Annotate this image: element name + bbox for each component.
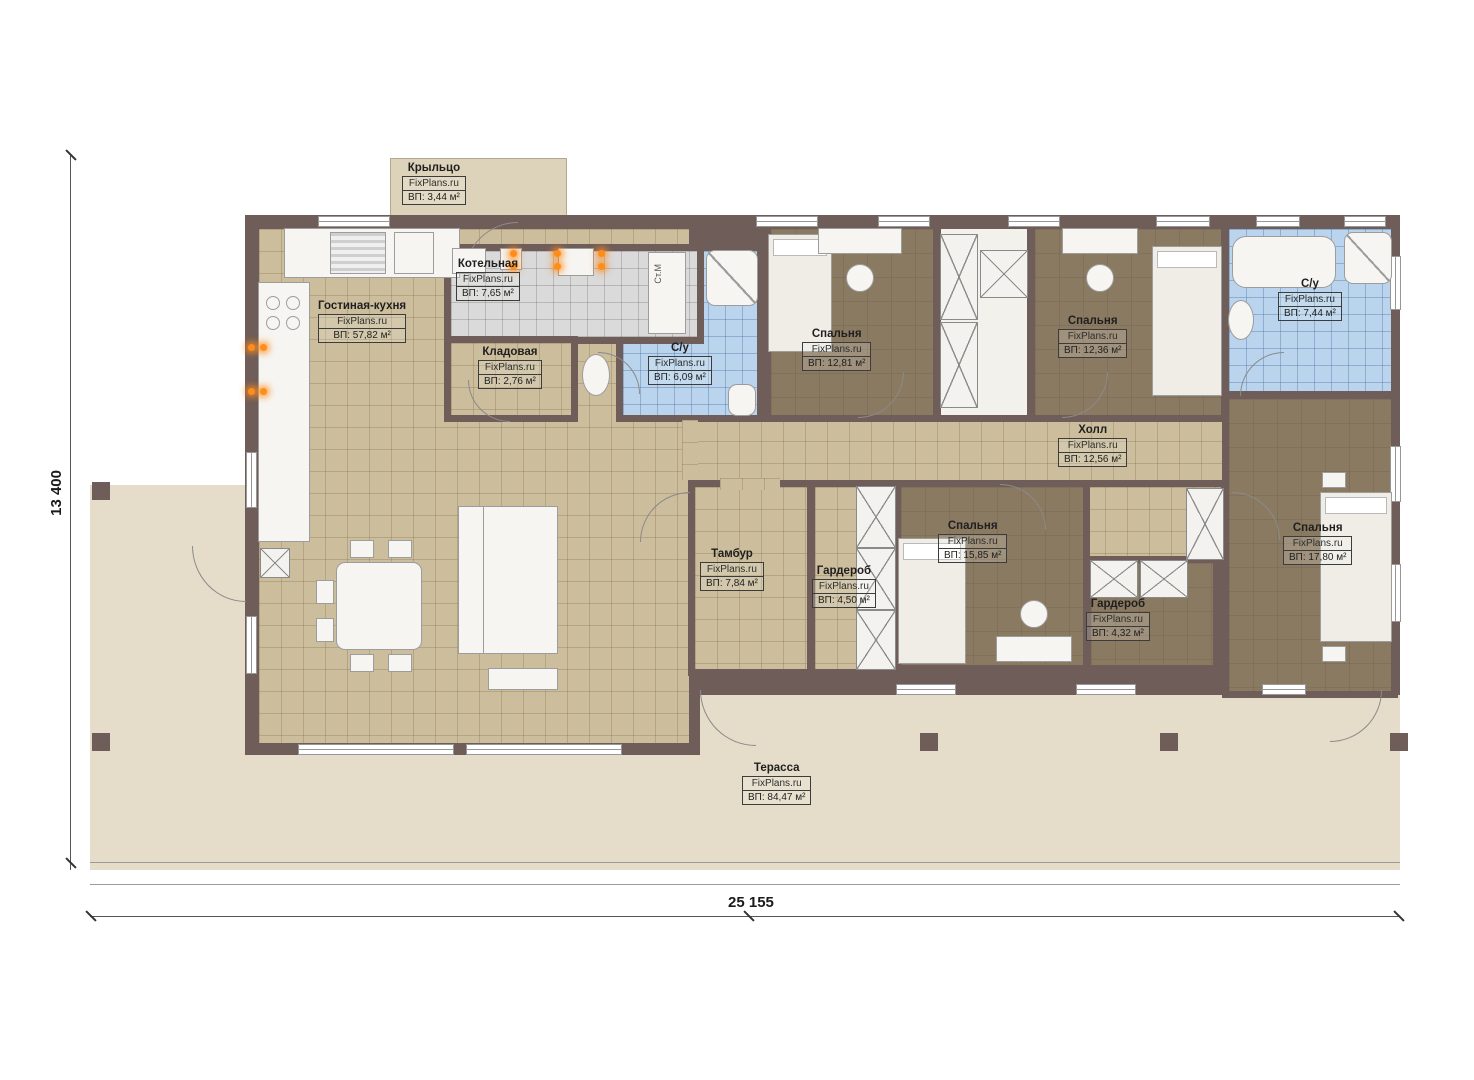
window (1008, 216, 1060, 227)
room-label-wardrobe-1: Гардероб FixPlans.ru ВП: 4,50 м² (812, 565, 876, 608)
room-area: ВП: 7,65 м² (457, 287, 519, 300)
room-area: ВП: 15,85 м² (939, 549, 1006, 562)
opening-hall-tambour (720, 478, 780, 490)
stove-burner (266, 316, 280, 330)
room-name: Гардероб (812, 565, 876, 577)
shaft-box (260, 548, 290, 578)
room-area: ВП: 12,36 м² (1059, 344, 1126, 357)
room-name: С/у (648, 342, 712, 354)
spot-light (598, 263, 605, 270)
lobby-sink (582, 354, 610, 396)
wardrobe-cabinet (856, 486, 896, 548)
nightstand (1322, 472, 1346, 488)
room-label-terrace: Терасса FixPlans.ru ВП: 84,47 м² (742, 762, 811, 805)
watermark: FixPlans.ru (457, 273, 519, 287)
room-area: ВП: 17,80 м² (1284, 551, 1351, 564)
dining-table (336, 562, 422, 650)
room-name: С/у (1278, 278, 1342, 290)
watermark: FixPlans.ru (1059, 439, 1126, 453)
room-name: Терасса (742, 762, 811, 774)
watermark: FixPlans.ru (1279, 293, 1341, 307)
wardrobe-cabinet (1090, 560, 1138, 598)
shower-tray (1344, 232, 1392, 284)
desk (1062, 228, 1138, 254)
window (878, 216, 930, 227)
chair (350, 540, 374, 558)
nightstand (1322, 646, 1346, 662)
room-area: ВП: 84,47 м² (743, 791, 810, 804)
room-area: ВП: 7,44 м² (1279, 307, 1341, 320)
room-label-living: Гостиная-кухня FixPlans.ru ВП: 57,82 м² (318, 300, 406, 343)
spot-light (260, 344, 267, 351)
watermark: FixPlans.ru (1059, 330, 1126, 344)
stove-burner (286, 316, 300, 330)
room-name: Спальня (1058, 315, 1127, 327)
desk-chair (846, 264, 874, 292)
watermark: FixPlans.ru (813, 580, 875, 594)
window (298, 744, 454, 755)
spot-light (554, 250, 561, 257)
room-label-wardrobe-2: Гардероб FixPlans.ru ВП: 4,32 м² (1086, 598, 1150, 641)
terrace-edge-line (90, 862, 1400, 863)
room-label-hall: Холл FixPlans.ru ВП: 12,56 м² (1058, 424, 1127, 467)
watermark: FixPlans.ru (319, 315, 405, 329)
window (756, 216, 818, 227)
room-name: Котельная (456, 258, 520, 270)
room-area: ВП: 3,44 м² (403, 191, 465, 204)
chair (316, 580, 334, 604)
room-label-bedroom-3: Спальня FixPlans.ru ВП: 15,85 м² (938, 520, 1007, 563)
window (246, 616, 257, 674)
room-area: ВП: 57,82 м² (319, 329, 405, 342)
terrace-post (92, 482, 110, 500)
spot-light (554, 263, 561, 270)
window (246, 452, 257, 508)
room-name: Спальня (802, 328, 871, 340)
room-name: Крыльцо (402, 162, 466, 174)
window (318, 216, 390, 227)
desk-chair (1020, 600, 1048, 628)
bathroom-sink (1228, 300, 1254, 340)
tv-stand (488, 668, 558, 690)
floor-plan: Ст.М Крыльцо FixPlans.ru ВП: (0, 0, 1474, 1080)
stove-burner (286, 296, 300, 310)
room-name: Спальня (938, 520, 1007, 532)
pillow (1325, 497, 1387, 514)
pillow (1157, 251, 1217, 268)
window (1256, 216, 1300, 227)
window (1156, 216, 1210, 227)
dimension-line-horizontal (90, 916, 1400, 917)
terrace-edge-line (90, 884, 1400, 885)
room-label-bedroom-1: Спальня FixPlans.ru ВП: 12,81 м² (802, 328, 871, 371)
wardrobe-cabinet (1140, 560, 1188, 598)
room-name: Спальня (1283, 522, 1352, 534)
room-label-boiler: Котельная FixPlans.ru ВП: 7,65 м² (456, 258, 520, 301)
sofa (458, 506, 558, 654)
room-name: Кладовая (478, 346, 542, 358)
window (1076, 684, 1136, 695)
spot-light (248, 388, 255, 395)
wardrobe-cabinet (940, 322, 978, 408)
room-hall (688, 412, 1232, 488)
wardrobe-cabinet (856, 610, 896, 670)
room-area: ВП: 4,32 м² (1087, 627, 1149, 640)
dimension-tick (65, 857, 76, 868)
spot-light (260, 388, 267, 395)
fridge (330, 232, 386, 274)
spot-light (510, 250, 517, 257)
chair (388, 540, 412, 558)
window (1262, 684, 1306, 695)
room-label-tambour: Тамбур FixPlans.ru ВП: 7,84 м² (700, 548, 764, 591)
terrace-area (90, 485, 248, 870)
bed (1152, 246, 1222, 396)
dimension-tick (65, 149, 76, 160)
watermark: FixPlans.ru (803, 343, 870, 357)
shower-tray (706, 250, 758, 306)
window (1344, 216, 1386, 227)
room-label-bedroom-4: Спальня FixPlans.ru ВП: 17,80 м² (1283, 522, 1352, 565)
watermark: FixPlans.ru (939, 535, 1006, 549)
watermark: FixPlans.ru (1087, 613, 1149, 627)
room-label-bedroom-2: Спальня FixPlans.ru ВП: 12,36 м² (1058, 315, 1127, 358)
room-name: Гардероб (1086, 598, 1150, 610)
desk-chair (1086, 264, 1114, 292)
wardrobe-cabinet (940, 234, 978, 320)
toilet (728, 384, 756, 416)
watermark: FixPlans.ru (701, 563, 763, 577)
dimension-width: 25 155 (728, 894, 774, 911)
room-label-bathroom-2: С/у FixPlans.ru ВП: 7,44 м² (1278, 278, 1342, 321)
room-name: Тамбур (700, 548, 764, 560)
chair (350, 654, 374, 672)
bed (1320, 492, 1392, 642)
dimension-line-vertical (70, 155, 71, 870)
wardrobe-cabinet (1186, 488, 1224, 560)
wardrobe-cabinet (980, 250, 1028, 298)
spot-light (248, 344, 255, 351)
boiler-sink (558, 248, 594, 276)
watermark: FixPlans.ru (1284, 537, 1351, 551)
window (896, 684, 956, 695)
room-area: ВП: 6,09 м² (649, 371, 711, 384)
room-name: Гостиная-кухня (318, 300, 406, 312)
spot-light (598, 250, 605, 257)
watermark: FixPlans.ru (403, 177, 465, 191)
room-area: ВП: 4,50 м² (813, 594, 875, 607)
dimension-height: 13 400 (48, 470, 65, 516)
terrace-post (1160, 733, 1178, 751)
room-label-bathroom-1: С/у FixPlans.ru ВП: 6,09 м² (648, 342, 712, 385)
terrace-post (920, 733, 938, 751)
kitchen-sink (394, 232, 434, 274)
chair (316, 618, 334, 642)
watermark: FixPlans.ru (479, 361, 541, 375)
desk (818, 228, 902, 254)
room-name: Холл (1058, 424, 1127, 436)
window (466, 744, 622, 755)
room-area: ВП: 12,56 м² (1059, 453, 1126, 466)
chair (388, 654, 412, 672)
washing-machine-label: Ст.М (653, 264, 663, 284)
room-area: ВП: 2,76 м² (479, 375, 541, 388)
terrace-post (92, 733, 110, 751)
room-area: ВП: 12,81 м² (803, 357, 870, 370)
room-area: ВП: 7,84 м² (701, 577, 763, 590)
stove-burner (266, 296, 280, 310)
room-label-storage: Кладовая FixPlans.ru ВП: 2,76 м² (478, 346, 542, 389)
terrace-post (1390, 733, 1408, 751)
watermark: FixPlans.ru (743, 777, 810, 791)
terrace-area (245, 748, 705, 870)
opening-living-hall (682, 420, 698, 480)
room-label-porch: Крыльцо FixPlans.ru ВП: 3,44 м² (402, 162, 466, 205)
desk (996, 636, 1072, 662)
watermark: FixPlans.ru (649, 357, 711, 371)
